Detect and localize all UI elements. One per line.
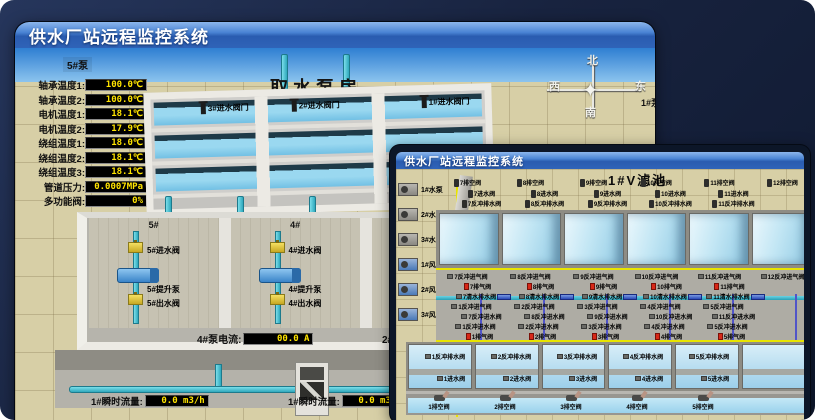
valve-icon bbox=[701, 376, 707, 381]
readout-label: 多功能阀: bbox=[21, 194, 85, 208]
top-inlet-valve-row: 7进水阀 8进水阀 9进水阀 10进水阀 11进水阀 bbox=[436, 189, 765, 198]
valve-chip[interactable]: 4反冲进气阀 bbox=[629, 302, 692, 311]
valve-chip[interactable]: 4进水阀 bbox=[616, 374, 682, 383]
valve-chip[interactable]: 2排气阀 bbox=[511, 332, 574, 341]
valve-label: 1反冲进水阀 bbox=[462, 322, 495, 331]
valve-chip[interactable]: 9排空阀 bbox=[562, 178, 625, 187]
back-window-titlebar[interactable]: 供水厂站远程监控系统 bbox=[15, 22, 655, 48]
pump-bay[interactable]: 4# 4#进水阀 4#提升泵 4#出水阀 bbox=[231, 218, 373, 328]
readout-row: 绕组温度1: 18.0℃ bbox=[21, 136, 153, 151]
clean-drain-upper-row: 7清水排水阀 8清水排水阀 9清水排水阀 10清水排水阀 bbox=[436, 292, 767, 301]
valve-chip[interactable]: 2进水阀 bbox=[484, 374, 550, 383]
valve-label: 3反冲进气阀 bbox=[584, 302, 617, 311]
readout-value: 18.1℃ bbox=[85, 166, 147, 178]
valve-icon bbox=[461, 314, 467, 319]
valve-icon bbox=[704, 179, 709, 187]
valve-icon bbox=[518, 324, 524, 329]
readout-label: 管道压力: bbox=[21, 180, 85, 194]
pump5-readout-panel: 5#泵 轴承温度1: 100.0℃ 轴承温度2: 100.0℃ 电机温度1: 1… bbox=[21, 56, 153, 209]
drain-pump-icon bbox=[434, 395, 445, 401]
alarm-valve-icon bbox=[464, 283, 469, 290]
valve-icon bbox=[524, 314, 530, 319]
valve-chip[interactable]: 3反冲进气阀 bbox=[566, 302, 629, 311]
valve-chip[interactable]: 11反冲进气阀 bbox=[688, 272, 751, 281]
valve-chip[interactable]: 10反冲排水阀 bbox=[639, 199, 702, 208]
inlet-valve-icon bbox=[270, 242, 285, 253]
valve-label: 7进水阀 bbox=[474, 189, 495, 198]
exhaust-lower-row: 1排气阀 2排气阀 3排气阀 4排气阀 5排气阀 bbox=[436, 332, 763, 341]
tank-icon bbox=[560, 294, 574, 300]
valve-chip[interactable]: 11反冲排水阀 bbox=[702, 199, 765, 208]
valve-icon bbox=[712, 200, 717, 208]
valve-chip[interactable]: 11进水阀 bbox=[702, 189, 765, 198]
valve-label: 9清水排水阀 bbox=[589, 292, 622, 301]
bay-number: 5# bbox=[149, 220, 159, 230]
drain-pump-icon bbox=[632, 395, 643, 401]
valve-label: 11反冲进水阀 bbox=[719, 312, 755, 321]
valve-chip[interactable]: 10反冲进水阀 bbox=[639, 312, 702, 321]
valve-icon bbox=[587, 314, 593, 319]
readout-row: 电机温度2: 17.9℃ bbox=[21, 122, 153, 137]
valve-icon bbox=[698, 274, 704, 279]
valve-icon bbox=[649, 314, 655, 319]
valve-label: 5反冲进气阀 bbox=[710, 302, 743, 311]
valve-chip[interactable]: 10反冲进气阀 bbox=[625, 272, 688, 281]
readout-value: 100.0℃ bbox=[85, 94, 147, 106]
alarm-valve-icon bbox=[718, 333, 723, 340]
inlet-valve-label: 5#进水阀 bbox=[147, 245, 180, 256]
pump-label: 5#提升泵 bbox=[147, 284, 180, 295]
valve-label: 8进水阀 bbox=[537, 189, 558, 198]
readout-label: 绕组温度1: bbox=[21, 136, 85, 150]
valve-icon bbox=[623, 354, 629, 359]
valve-icon bbox=[655, 190, 660, 198]
alarm-valve-icon bbox=[529, 333, 534, 340]
valve-label: 7排气阀 bbox=[470, 282, 491, 291]
readout-label: 电机温度1: bbox=[21, 107, 85, 121]
machine-icon bbox=[398, 183, 418, 196]
alarm-valve-icon bbox=[466, 333, 471, 340]
valve-label: 10反冲进水阀 bbox=[656, 312, 693, 321]
valve-icon bbox=[644, 324, 650, 329]
valve-chip[interactable]: 11排空阀 bbox=[688, 178, 751, 187]
valve-icon bbox=[462, 200, 467, 208]
machine-icon bbox=[398, 208, 418, 221]
valve-label: 9反冲进水阀 bbox=[594, 312, 627, 321]
valve-icon bbox=[577, 304, 583, 309]
valve-chip[interactable]: 3排气阀 bbox=[574, 332, 637, 341]
readout-label: 绕组温度3: bbox=[21, 165, 85, 179]
pump1-readout-panel: 1#泵 bbox=[589, 96, 655, 141]
pump-icon bbox=[117, 268, 159, 283]
front-window-titlebar[interactable]: 供水厂站远程监控系统 bbox=[396, 152, 804, 169]
machine-icon bbox=[398, 258, 418, 271]
valve-chip[interactable]: 2反冲排水阀 bbox=[478, 352, 544, 361]
valve-label: 3反冲排水阀 bbox=[564, 352, 597, 361]
valve-icon bbox=[767, 179, 772, 187]
readout-row: 绕组温度3: 18.1℃ bbox=[21, 165, 153, 180]
valve-icon bbox=[514, 304, 520, 309]
valve-label: 11排气阀 bbox=[720, 282, 744, 291]
valve-label: 8反冲排水阀 bbox=[531, 199, 564, 208]
valve-chip[interactable]: 2排空阀 bbox=[472, 395, 538, 411]
valve-icon bbox=[456, 294, 462, 299]
valve-label: 2#进水阀门 bbox=[299, 99, 340, 111]
valve-chip[interactable]: 8排空阀 bbox=[499, 178, 562, 187]
valve-label: 10进水阀 bbox=[661, 189, 686, 198]
alarm-valve-icon bbox=[590, 283, 595, 290]
valve-label: 10排空阀 bbox=[647, 178, 672, 187]
valve-chip[interactable]: 3进水阀 bbox=[550, 374, 616, 383]
valve-label: 11进水阀 bbox=[724, 189, 748, 198]
valve-chip[interactable]: 8进水阀 bbox=[513, 189, 576, 198]
pump5-panel-header: 5#泵 bbox=[63, 57, 92, 72]
valve-chip[interactable]: 8反冲排水阀 bbox=[513, 199, 576, 208]
valve-label: 10反冲进气阀 bbox=[642, 272, 679, 281]
compass-east: 东 bbox=[635, 78, 646, 94]
filter-cell[interactable] bbox=[627, 213, 687, 265]
valve-label: 1#进水阀门 bbox=[429, 96, 470, 108]
valve-label: 2反冲进气阀 bbox=[521, 302, 554, 311]
backwash-water-lower-row: 1反冲进水阀 2反冲进水阀 3反冲进水阀 4反冲进水阀 5反冲进 bbox=[436, 322, 759, 331]
drain-pump-icon bbox=[500, 395, 511, 401]
filter-cell[interactable] bbox=[752, 213, 805, 265]
valve-icon bbox=[531, 190, 536, 198]
valve-chip[interactable]: 1反冲进水阀 bbox=[444, 322, 507, 331]
back-window-title: 供水厂站远程监控系统 bbox=[29, 23, 209, 48]
desktop-background: 供水厂站远程监控系统 取水泵房 5#泵 轴承温度1: 100.0℃ 轴承温度2:… bbox=[0, 0, 815, 420]
valve-chip[interactable]: 4反冲进水阀 bbox=[633, 322, 696, 331]
top-backwash-drain-row: 7反冲排水阀 8反冲排水阀 9反冲排水阀 10反冲排水阀 11反冲排水阀 bbox=[436, 199, 765, 208]
outlet-valve-icon bbox=[128, 294, 143, 305]
front-window-title: 供水厂站远程监控系统 bbox=[404, 153, 524, 169]
valve-chip[interactable]: 9进水阀 bbox=[576, 189, 639, 198]
readout-value: 0% bbox=[85, 195, 147, 207]
valve-icon bbox=[643, 294, 649, 299]
valve-chip[interactable]: 8反冲进水阀 bbox=[513, 312, 576, 321]
valve-chip[interactable]: 11清水排水阀 bbox=[704, 292, 767, 301]
valve-label: 3排空阀 bbox=[560, 402, 581, 411]
valve-icon bbox=[510, 274, 516, 279]
valve-chip[interactable]: 7反冲排水阀 bbox=[450, 199, 513, 208]
valve-label: 12反冲进气阀 bbox=[768, 272, 804, 281]
valve-icon bbox=[447, 274, 453, 279]
valve-label: 1反冲进气阀 bbox=[458, 302, 491, 311]
valve-icon bbox=[761, 274, 767, 279]
valve-icon bbox=[594, 190, 599, 198]
readout-label: 绕组温度2: bbox=[21, 151, 85, 165]
readout-value: 0.0007MPa bbox=[85, 181, 147, 193]
front-window: 供水厂站远程监控系统 1#V滤池 1#水泵 2#水泵 3#水泵 1#风机 bbox=[390, 145, 810, 420]
valve-label: 8排空阀 bbox=[523, 178, 544, 187]
valve-chip[interactable]: 4排气阀 bbox=[637, 332, 700, 341]
valve-chip[interactable]: 5进水阀 bbox=[682, 374, 748, 383]
readout-label bbox=[589, 109, 655, 125]
intake-valve[interactable]: 1#进水阀门 bbox=[422, 96, 470, 108]
readout-label: 电机温度2: bbox=[21, 122, 85, 136]
valve-label: 8排气阀 bbox=[533, 282, 554, 291]
valve-chip[interactable]: 9反冲进气阀 bbox=[562, 272, 625, 281]
valve-icon bbox=[703, 304, 709, 309]
valve-label: 5反冲进水阀 bbox=[714, 322, 747, 331]
valve-chip[interactable]: 10排气阀 bbox=[635, 282, 698, 291]
tank-icon bbox=[751, 294, 765, 300]
valve-icon bbox=[635, 274, 641, 279]
valve-icon bbox=[573, 274, 579, 279]
valve-icon bbox=[689, 354, 695, 359]
drain-channel: 1排空阀 2排空阀 3排空阀 4排空阀 5排空阀 bbox=[406, 391, 804, 415]
valve-chip[interactable]: 11反冲进水阀 bbox=[702, 312, 765, 321]
valve-chip[interactable]: 7清水排水阀 bbox=[452, 292, 515, 301]
valve-label: 11清水排水阀 bbox=[713, 292, 749, 301]
valve-label: 2排气阀 bbox=[535, 332, 556, 341]
readout-label: 轴承温度2: bbox=[21, 93, 85, 107]
valve-icon bbox=[640, 304, 646, 309]
drain-pump-icon bbox=[698, 395, 709, 401]
valve-icon bbox=[201, 103, 206, 114]
readout-value: 17.9℃ bbox=[85, 123, 147, 135]
filter-cell[interactable] bbox=[439, 213, 499, 265]
valve-chip[interactable]: 9清水排水阀 bbox=[578, 292, 641, 301]
valve-chip[interactable]: 7排空阀 bbox=[436, 178, 499, 187]
valve-chip[interactable]: 4反冲排水阀 bbox=[610, 352, 676, 361]
readout-label: 轴承温度1: bbox=[21, 78, 85, 92]
tank-icon bbox=[623, 294, 637, 300]
backwash-air-lower-row: 1反冲进气阀 2反冲进气阀 3反冲进气阀 4反冲进气阀 5反冲进 bbox=[436, 302, 755, 311]
valve-label: 2反冲排水阀 bbox=[498, 352, 531, 361]
drain-valve-row: 1排空阀 2排空阀 3排空阀 4排空阀 5排空阀 bbox=[406, 395, 736, 411]
valve-chip[interactable]: 1进水阀 bbox=[418, 374, 484, 383]
valve-label: 7反冲进气阀 bbox=[454, 272, 487, 281]
valve-chip[interactable]: 12反冲进气阀 bbox=[751, 272, 804, 281]
exhaust-upper-row: 7排气阀 8排气阀 9排气阀 10排气阀 11排气阀 bbox=[436, 282, 761, 291]
valve-chip[interactable]: 1排空阀 bbox=[406, 395, 472, 411]
valve-chip[interactable]: 5排空阀 bbox=[670, 395, 736, 411]
pump1-panel-header: 1#泵 bbox=[641, 96, 655, 109]
valve-label: 12排空阀 bbox=[773, 178, 798, 187]
readout-value: 18.0℃ bbox=[85, 137, 147, 149]
valve-label: 9排空阀 bbox=[586, 178, 607, 187]
valve-label: 4反冲进水阀 bbox=[651, 322, 684, 331]
valve-chip[interactable]: 8清水排水阀 bbox=[515, 292, 578, 301]
readout-row: 多功能阀: 0% bbox=[21, 194, 153, 209]
valve-chip[interactable]: 9排气阀 bbox=[572, 282, 635, 291]
valve-chip[interactable]: 3反冲排水阀 bbox=[544, 352, 610, 361]
flow-readout-1: 1#瞬时流量: 0.0 m3/h bbox=[91, 394, 209, 408]
valve-label: 7清水排水阀 bbox=[463, 292, 496, 301]
drain-pump-icon bbox=[566, 395, 577, 401]
valve-label: 11反冲进气阀 bbox=[705, 272, 741, 281]
pump-label: 4#提升泵 bbox=[289, 284, 322, 295]
filter-cell[interactable] bbox=[689, 213, 749, 265]
valve-icon bbox=[422, 97, 427, 108]
valve-icon bbox=[451, 304, 457, 309]
bay-number: 4# bbox=[290, 220, 300, 230]
valve-chip[interactable]: 5排气阀 bbox=[700, 332, 763, 341]
valve-label: 10反冲排水阀 bbox=[655, 199, 692, 208]
valve-label: 4反冲进气阀 bbox=[647, 302, 680, 311]
valve-chip[interactable]: 10进水阀 bbox=[639, 189, 702, 198]
filter-cell[interactable] bbox=[502, 213, 562, 265]
filter-cell[interactable] bbox=[564, 213, 624, 265]
readout-label: 1#瞬时流量: bbox=[288, 394, 340, 408]
pump1-label-list bbox=[589, 109, 655, 141]
valve-chip[interactable]: 10清水排水阀 bbox=[641, 292, 704, 301]
valve-chip[interactable]: 1排气阀 bbox=[448, 332, 511, 341]
valve-label: 4进水阀 bbox=[642, 374, 663, 383]
valve-icon bbox=[706, 294, 712, 299]
valve-icon bbox=[569, 376, 575, 381]
compass-north: 北 bbox=[587, 52, 598, 68]
machine-icon bbox=[398, 308, 418, 321]
readout-value: 00.0 A bbox=[243, 333, 313, 345]
valve-icon bbox=[454, 179, 459, 187]
readout-row: 绕组温度2: 18.1℃ bbox=[21, 151, 153, 166]
readout-label: 4#泵电流: bbox=[197, 331, 241, 346]
valve-chip[interactable]: 12排空阀 bbox=[751, 178, 804, 187]
valve-icon bbox=[649, 200, 654, 208]
valve-chip[interactable]: 7进水阀 bbox=[450, 189, 513, 198]
backwash-water-upper-row: 7反冲进水阀 8反冲进水阀 9反冲进水阀 10反冲进水阀 11反 bbox=[436, 312, 765, 321]
valve-label: 3#进水阀门 bbox=[208, 102, 249, 114]
valve-chip[interactable]: 5反冲进水阀 bbox=[696, 322, 759, 331]
valve-icon bbox=[635, 376, 641, 381]
valve-label: 9反冲进气阀 bbox=[580, 272, 613, 281]
bottom-backwash-drain-row: 1反冲排水阀 2反冲排水阀 3反冲排水阀 4反冲排水阀 5反冲排水阀 bbox=[406, 352, 742, 361]
machine-icon bbox=[398, 283, 418, 296]
outlet-valve-label: 5#出水阀 bbox=[147, 298, 180, 309]
valve-label: 2排空阀 bbox=[494, 402, 515, 411]
valve-chip[interactable]: 11排气阀 bbox=[698, 282, 761, 291]
flow-readout-2: 1#瞬时流量: 0.0 m3/h bbox=[288, 394, 406, 408]
bottom-inlet-row: 1进水阀 2进水阀 3进水阀 4进水阀 5进水阀 bbox=[406, 374, 748, 383]
valve-chip[interactable]: 2反冲进气阀 bbox=[503, 302, 566, 311]
top-drain-valve-row: 7排空阀 8排空阀 9排空阀 10排空阀 11排空阀 bbox=[436, 178, 804, 187]
valve-label: 5反冲排水阀 bbox=[696, 352, 729, 361]
valve-chip[interactable]: 2反冲进水阀 bbox=[507, 322, 570, 331]
alarm-valve-icon bbox=[651, 283, 656, 290]
valve-chip[interactable]: 7排气阀 bbox=[446, 282, 509, 291]
valve-label: 2反冲进水阀 bbox=[525, 322, 558, 331]
valve-label: 5排气阀 bbox=[724, 332, 745, 341]
valve-chip[interactable]: 7反冲进气阀 bbox=[436, 272, 499, 281]
valve-icon bbox=[707, 324, 713, 329]
machine-icon bbox=[398, 233, 418, 246]
readout-value: 18.1℃ bbox=[85, 152, 147, 164]
readout-row: 管道压力: 0.0007MPa bbox=[21, 180, 153, 195]
readout-list: 轴承温度1: 100.0℃ 轴承温度2: 100.0℃ 电机温度1: 18.1℃… bbox=[21, 78, 153, 209]
backwash-air-upper-row: 7反冲进气阀 8反冲进气阀 9反冲进气阀 10反冲进气阀 11反 bbox=[436, 272, 804, 281]
valve-icon bbox=[525, 200, 530, 208]
readout-value: 18.1℃ bbox=[85, 108, 147, 120]
valve-chip[interactable]: 7反冲进水阀 bbox=[450, 312, 513, 321]
valve-chip[interactable]: 4排空阀 bbox=[604, 395, 670, 411]
valve-icon bbox=[582, 294, 588, 299]
valve-label: 2进水阀 bbox=[510, 374, 531, 383]
bottom-cell-labels: 1反冲排水阀 2反冲排水阀 3反冲排水阀 4反冲排水阀 5反冲排水阀 bbox=[406, 342, 804, 391]
valve-icon bbox=[641, 179, 646, 187]
valve-label: 7排空阀 bbox=[460, 178, 481, 187]
valve-icon bbox=[519, 294, 525, 299]
valve-label: 10排气阀 bbox=[657, 282, 682, 291]
valve-chip[interactable]: 8反冲进气阀 bbox=[499, 272, 562, 281]
readout-row: 轴承温度2: 100.0℃ bbox=[21, 93, 153, 108]
valve-icon bbox=[437, 376, 443, 381]
pipe bbox=[795, 294, 797, 340]
valve-label: 8清水排水阀 bbox=[526, 292, 559, 301]
readout-value: 0.0 m3/h bbox=[145, 395, 209, 407]
valve-label: 1进水阀 bbox=[444, 374, 465, 383]
valve-chip[interactable]: 3反冲进水阀 bbox=[570, 322, 633, 331]
intake-valve[interactable]: 2#进水阀门 bbox=[292, 99, 340, 111]
valve-label: 4排气阀 bbox=[661, 332, 682, 341]
valve-label: 9反冲排水阀 bbox=[594, 199, 627, 208]
inlet-valve-icon bbox=[128, 242, 143, 253]
valve-chip[interactable]: 9反冲进水阀 bbox=[576, 312, 639, 321]
valve-label: 3排气阀 bbox=[598, 332, 619, 341]
valve-chip[interactable]: 5反冲排水阀 bbox=[676, 352, 742, 361]
filter-pool-scene: 1#V滤池 1#水泵 2#水泵 3#水泵 1#风机 2#风机 bbox=[396, 169, 804, 420]
valve-label: 5进水阀 bbox=[708, 374, 729, 383]
valve-label: 3进水阀 bbox=[576, 374, 597, 383]
readout-row: 轴承温度1: 100.0℃ bbox=[21, 78, 153, 93]
readout-value: 100.0℃ bbox=[85, 79, 147, 91]
valve-icon bbox=[425, 354, 431, 359]
valve-chip[interactable]: 1反冲排水阀 bbox=[412, 352, 478, 361]
outlet-valve-label: 4#出水阀 bbox=[289, 298, 322, 309]
valve-icon bbox=[718, 190, 723, 198]
valve-label: 1排气阀 bbox=[472, 332, 493, 341]
valve-label: 1反冲排水阀 bbox=[432, 352, 465, 361]
pump-icon bbox=[259, 268, 301, 283]
tank-icon bbox=[497, 294, 511, 300]
inlet-valve-label: 4#进水阀 bbox=[289, 245, 322, 256]
outlet-valve-icon bbox=[270, 294, 285, 305]
valve-chip[interactable]: 10排空阀 bbox=[625, 178, 688, 187]
tank-icon bbox=[688, 294, 702, 300]
valve-chip[interactable]: 8排气阀 bbox=[509, 282, 572, 291]
intake-valve[interactable]: 3#进水阀门 bbox=[201, 102, 249, 114]
valve-icon bbox=[712, 314, 718, 319]
valve-icon bbox=[491, 354, 497, 359]
valve-label: 9排气阀 bbox=[596, 282, 617, 291]
valve-label: 4排空阀 bbox=[626, 402, 647, 411]
alarm-valve-icon bbox=[592, 333, 597, 340]
valve-icon bbox=[581, 324, 587, 329]
pump4-current-readout: 4#泵电流: 00.0 A bbox=[197, 331, 313, 346]
valve-icon bbox=[517, 179, 522, 187]
valve-chip[interactable]: 9反冲排水阀 bbox=[576, 199, 639, 208]
valve-label: 11排空阀 bbox=[710, 178, 734, 187]
compass-west: 西 bbox=[549, 78, 560, 94]
valve-label: 7反冲进水阀 bbox=[468, 312, 501, 321]
valve-icon bbox=[503, 376, 509, 381]
valve-icon bbox=[455, 324, 461, 329]
valve-label: 5排空阀 bbox=[692, 402, 713, 411]
valve-chip[interactable]: 1反冲进气阀 bbox=[440, 302, 503, 311]
readout-label bbox=[589, 125, 655, 141]
valve-chip[interactable]: 3排空阀 bbox=[538, 395, 604, 411]
valve-chip[interactable]: 5反冲进气阀 bbox=[692, 302, 755, 311]
readout-label: 1#瞬时流量: bbox=[91, 394, 143, 408]
pump-bay[interactable]: 5# 5#进水阀 5#提升泵 5#出水阀 bbox=[89, 218, 231, 328]
valve-label: 8反冲进水阀 bbox=[531, 312, 564, 321]
valve-label: 3反冲进水阀 bbox=[588, 322, 621, 331]
valve-label: 1排空阀 bbox=[428, 402, 449, 411]
valve-icon bbox=[580, 179, 585, 187]
valve-label: 7反冲排水阀 bbox=[468, 199, 501, 208]
filter-cells-top bbox=[436, 210, 804, 268]
